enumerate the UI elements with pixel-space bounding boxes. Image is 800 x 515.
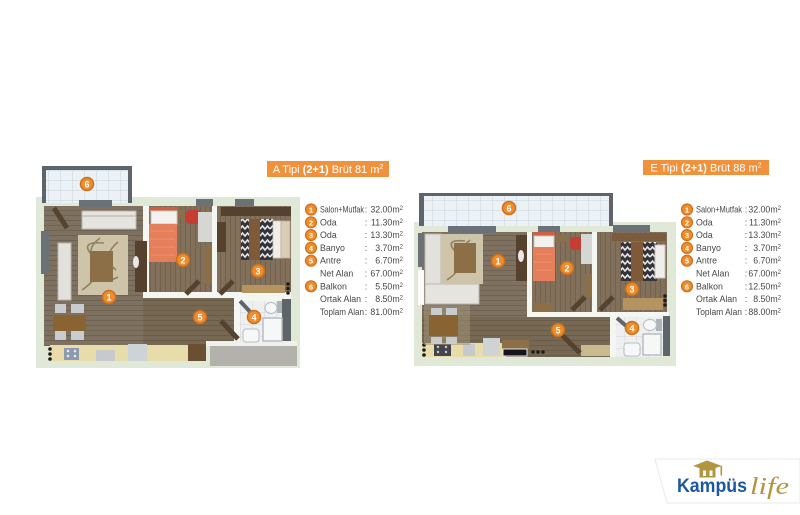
svg-text::: : xyxy=(365,294,367,304)
svg-text:6: 6 xyxy=(506,203,511,213)
svg-text:3.70m2: 3.70m2 xyxy=(375,243,403,253)
svg-text:Balkon: Balkon xyxy=(320,281,347,291)
svg-text:12.50m2: 12.50m2 xyxy=(748,281,781,291)
svg-text::: : xyxy=(365,217,367,227)
svg-text::: : xyxy=(365,205,367,215)
svg-text:13.30m2: 13.30m2 xyxy=(748,230,781,240)
svg-text:2: 2 xyxy=(180,255,185,265)
svg-text:4: 4 xyxy=(629,323,634,333)
svg-text::: : xyxy=(745,243,747,253)
svg-text:6.70m2: 6.70m2 xyxy=(753,256,781,266)
svg-text::: : xyxy=(365,256,367,266)
svg-text::: : xyxy=(745,256,747,266)
svg-text:5: 5 xyxy=(555,325,560,335)
svg-text:Net Alan: Net Alan xyxy=(696,269,729,279)
svg-text::: : xyxy=(745,281,747,291)
svg-text::: : xyxy=(745,294,747,304)
svg-text::: : xyxy=(745,307,747,317)
svg-text:Kampüs: Kampüs xyxy=(677,476,747,497)
svg-text:88.00m2: 88.00m2 xyxy=(748,307,781,317)
svg-text::: : xyxy=(365,269,367,279)
svg-text:2: 2 xyxy=(309,218,313,227)
svg-text:Oda: Oda xyxy=(320,230,337,240)
svg-text:5.50m2: 5.50m2 xyxy=(375,281,403,291)
svg-text:11.30m2: 11.30m2 xyxy=(371,217,404,227)
svg-text:32.00m2: 32.00m2 xyxy=(370,205,403,215)
svg-text::: : xyxy=(745,230,747,240)
svg-text:Toplam Alan: Toplam Alan xyxy=(320,307,364,317)
svg-text:1: 1 xyxy=(106,292,111,302)
svg-text:4: 4 xyxy=(251,312,256,322)
svg-text:5: 5 xyxy=(197,312,202,322)
svg-text:Balkon: Balkon xyxy=(696,281,723,291)
svg-text:1: 1 xyxy=(495,256,500,266)
svg-text:2: 2 xyxy=(564,263,569,273)
svg-text:Antre: Antre xyxy=(696,256,717,266)
svg-text:Salon+Mutfak: Salon+Mutfak xyxy=(320,205,364,215)
svg-text:32.00m2: 32.00m2 xyxy=(748,205,781,215)
svg-text:Oda: Oda xyxy=(320,217,337,227)
svg-text:Ortak Alan: Ortak Alan xyxy=(320,294,361,304)
svg-text:2: 2 xyxy=(685,218,689,227)
svg-text:67.00m2: 67.00m2 xyxy=(370,269,403,279)
svg-text:Ortak Alan: Ortak Alan xyxy=(696,294,737,304)
svg-text::: : xyxy=(365,230,367,240)
svg-text:6: 6 xyxy=(84,179,89,189)
svg-text:8.50m2: 8.50m2 xyxy=(753,294,781,304)
svg-text:Oda: Oda xyxy=(696,230,713,240)
svg-text::: : xyxy=(365,243,367,253)
svg-text:11.30m2: 11.30m2 xyxy=(749,217,782,227)
svg-text::: : xyxy=(745,217,747,227)
svg-text:Toplam Alan: Toplam Alan xyxy=(696,307,742,317)
svg-text:6: 6 xyxy=(685,282,689,291)
svg-text:3.70m2: 3.70m2 xyxy=(753,243,781,253)
svg-text::: : xyxy=(745,205,747,215)
svg-text::: : xyxy=(745,269,747,279)
svg-text:Banyo: Banyo xyxy=(320,243,345,253)
svg-text:5: 5 xyxy=(309,257,313,266)
svg-text:1: 1 xyxy=(685,206,689,215)
svg-text:6.70m2: 6.70m2 xyxy=(375,256,403,266)
svg-text:3: 3 xyxy=(685,231,689,240)
svg-text::: : xyxy=(365,281,367,291)
svg-text:Antre: Antre xyxy=(320,256,341,266)
svg-text:life: life xyxy=(750,474,789,500)
svg-text:Net Alan: Net Alan xyxy=(320,269,353,279)
svg-text:5: 5 xyxy=(685,257,689,266)
svg-text:8.50m2: 8.50m2 xyxy=(375,294,403,304)
svg-text:3: 3 xyxy=(309,231,313,240)
svg-text:E Tipi (2+1) Brüt 88 m2: E Tipi (2+1) Brüt 88 m2 xyxy=(650,163,761,175)
svg-text::: : xyxy=(365,307,367,317)
svg-text:3: 3 xyxy=(629,284,634,294)
svg-text:13.30m2: 13.30m2 xyxy=(370,230,403,240)
svg-text:Oda: Oda xyxy=(696,217,713,227)
svg-text:Salon+Mutfak: Salon+Mutfak xyxy=(696,205,743,215)
svg-text:3: 3 xyxy=(255,266,260,276)
svg-text:81.00m2: 81.00m2 xyxy=(370,307,403,317)
svg-text:A Tipi (2+1) Brüt 81 m2: A Tipi (2+1) Brüt 81 m2 xyxy=(273,164,384,176)
svg-text:6: 6 xyxy=(309,282,313,291)
svg-text:Banyo: Banyo xyxy=(696,243,721,253)
svg-text:67.00m2: 67.00m2 xyxy=(748,269,781,279)
svg-text:1: 1 xyxy=(309,206,313,215)
